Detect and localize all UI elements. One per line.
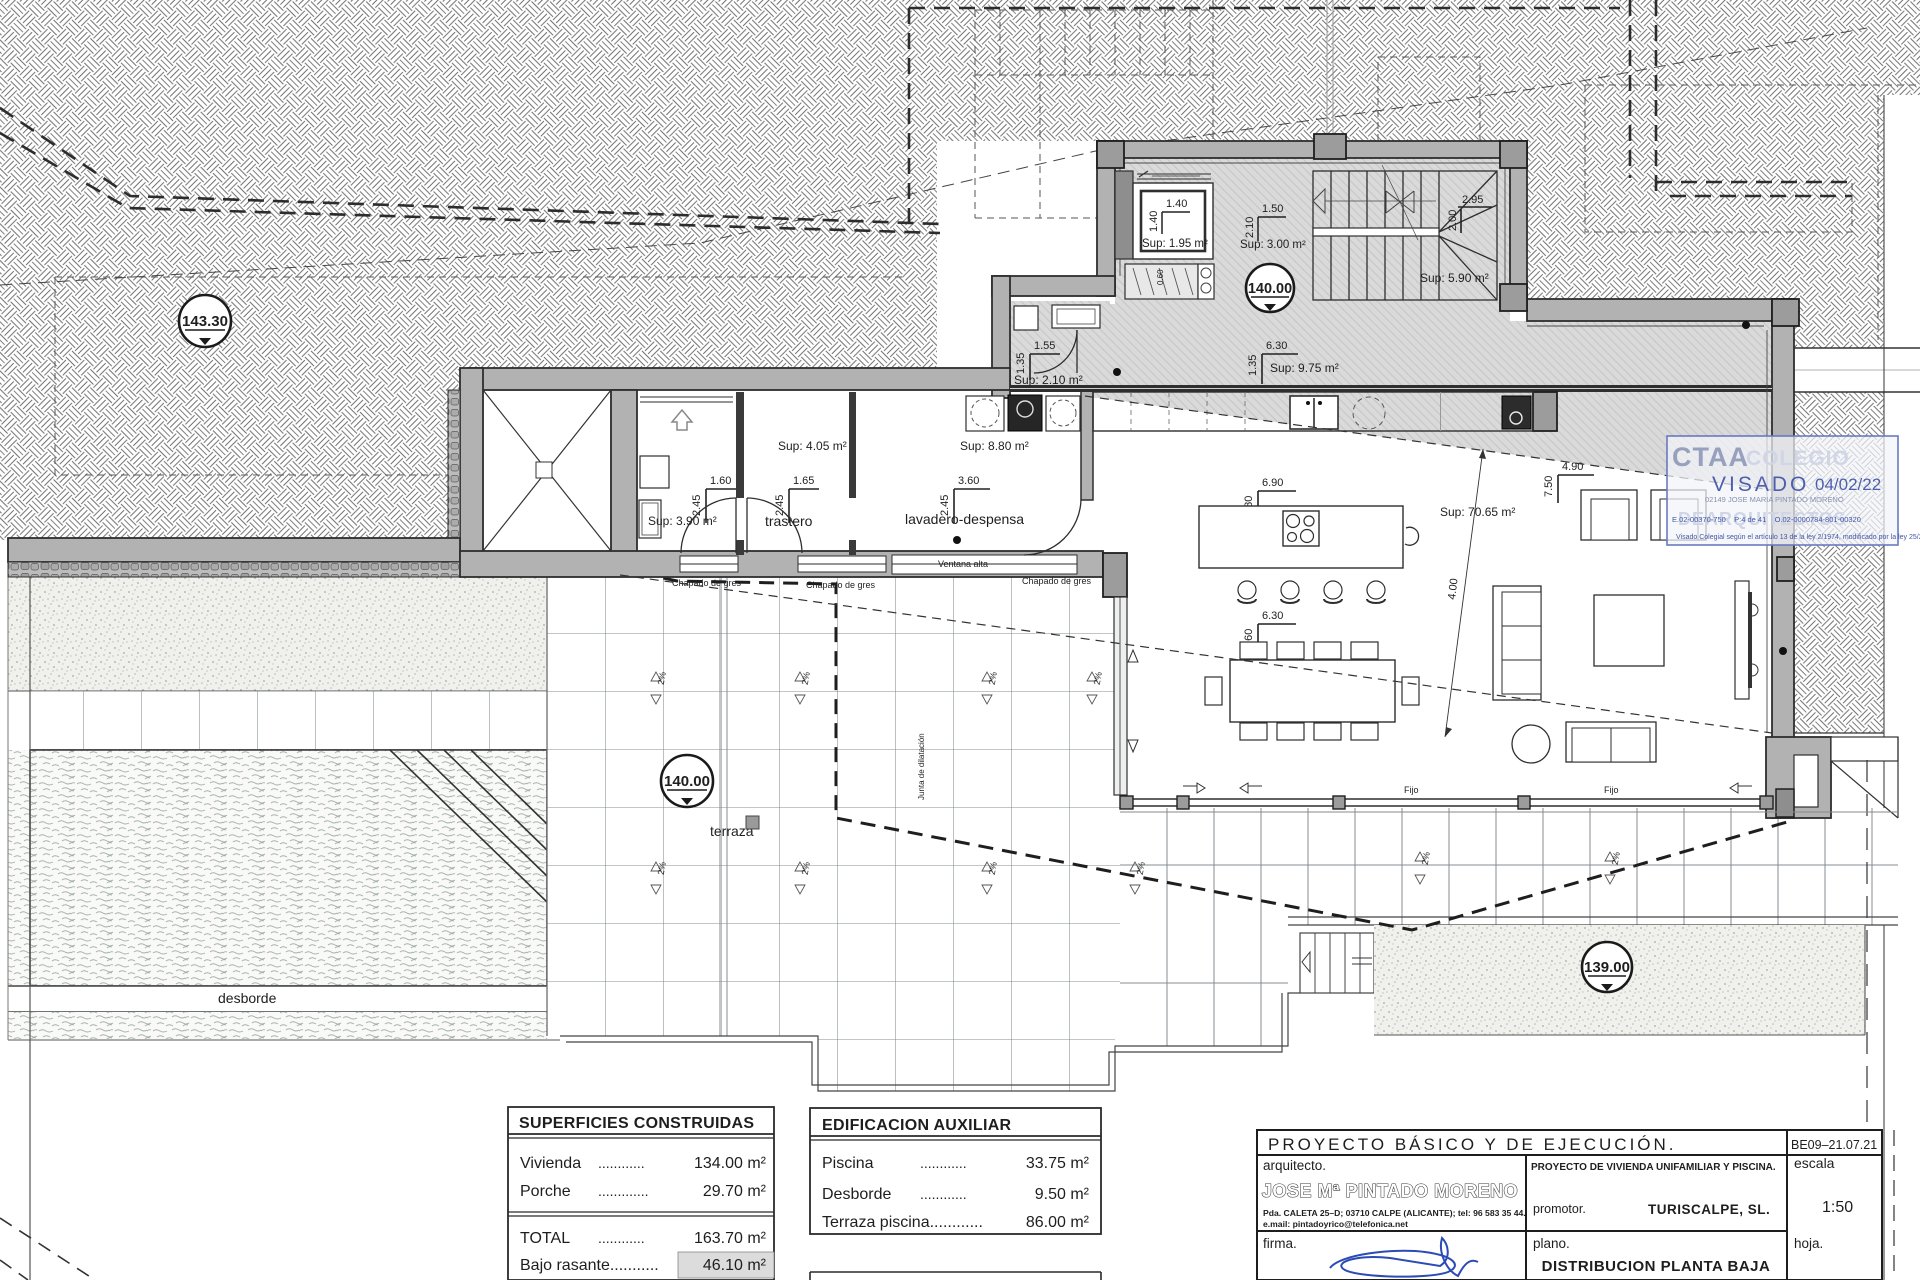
svg-text:Ventana alta: Ventana alta xyxy=(938,559,988,569)
svg-text:Desborde: Desborde xyxy=(822,1186,891,1203)
svg-text:1.35: 1.35 xyxy=(1015,353,1027,374)
svg-text:DISTRIBUCION PLANTA BAJA: DISTRIBUCION PLANTA BAJA xyxy=(1542,1258,1771,1275)
svg-text:Sup: 3.00 m²: Sup: 3.00 m² xyxy=(1240,239,1306,251)
svg-text:Fijo: Fijo xyxy=(1404,785,1419,795)
svg-text:6.30: 6.30 xyxy=(1262,610,1283,622)
svg-text:............: ............ xyxy=(598,1155,645,1171)
svg-text:............: ............ xyxy=(920,1186,967,1202)
svg-text:4.90: 4.90 xyxy=(1562,461,1583,473)
svg-text:1.35: 1.35 xyxy=(1247,355,1259,376)
svg-text:TOTAL: TOTAL xyxy=(520,1230,570,1247)
svg-text:E.02-00370-750 P:4 de 41: E.02-00370-750 P:4 de 41 O.02-0000784-80… xyxy=(1672,515,1861,524)
svg-text:2.45: 2.45 xyxy=(691,495,703,516)
svg-text:Sup: 9.75 m²: Sup: 9.75 m² xyxy=(1270,361,1339,375)
svg-text:Fijo: Fijo xyxy=(1604,785,1619,795)
svg-text:CTAA: CTAA xyxy=(1672,442,1749,472)
svg-text:6.30: 6.30 xyxy=(1266,340,1287,352)
svg-text:2.10: 2.10 xyxy=(1244,217,1256,238)
svg-text:JOSE Mª PINTADO MORENO: JOSE Mª PINTADO MORENO xyxy=(1262,1181,1518,1201)
svg-text:9.50 m²: 9.50 m² xyxy=(1035,1186,1090,1203)
svg-text:04/02/22: 04/02/22 xyxy=(1815,475,1881,494)
svg-text:............: ............ xyxy=(920,1155,967,1171)
svg-text:firma.: firma. xyxy=(1263,1236,1297,1251)
svg-text:lavadero-despensa: lavadero-despensa xyxy=(905,511,1024,527)
svg-text:e.mail: pintadoyrico@telefonic: e.mail: pintadoyrico@telefonica.net xyxy=(1263,1219,1408,1229)
svg-text:Sup: 5.90 m²: Sup: 5.90 m² xyxy=(1420,271,1489,285)
svg-text:1:50: 1:50 xyxy=(1822,1199,1853,1216)
svg-text:2.00: 2.00 xyxy=(1447,210,1459,231)
svg-text:143.30: 143.30 xyxy=(182,313,228,330)
svg-text:Pda. CALETA 25–D; 03710 CALPE: Pda. CALETA 25–D; 03710 CALPE (ALICANTE)… xyxy=(1263,1208,1526,1218)
svg-text:Sup: 3.90 m²: Sup: 3.90 m² xyxy=(648,514,717,528)
svg-text:86.00 m²: 86.00 m² xyxy=(1026,1214,1090,1231)
svg-text:TURISCALPE, SL.: TURISCALPE, SL. xyxy=(1648,1202,1770,1217)
svg-text:134.00 m²: 134.00 m² xyxy=(694,1155,767,1172)
svg-text:arquitecto.: arquitecto. xyxy=(1263,1158,1326,1173)
svg-text:Visado Colegial según el artíc: Visado Colegial según el artículo 13 de … xyxy=(1676,534,1920,541)
svg-text:1.40: 1.40 xyxy=(1166,198,1187,210)
svg-text:Sup: 70.65 m²: Sup: 70.65 m² xyxy=(1440,505,1515,519)
svg-text:PROYECTO BÁSICO Y DE EJECU: PROYECTO BÁSICO Y DE EJECUCIÓN. xyxy=(1268,1135,1677,1154)
svg-text:139.00: 139.00 xyxy=(1584,959,1630,976)
svg-text:Piscina: Piscina xyxy=(822,1155,874,1172)
svg-text:1.50: 1.50 xyxy=(1262,203,1283,215)
svg-text:2.95: 2.95 xyxy=(1462,194,1483,206)
svg-text:Vivienda: Vivienda xyxy=(520,1155,581,1172)
svg-text:Chapado de gres: Chapado de gres xyxy=(806,580,876,590)
svg-text:1.55: 1.55 xyxy=(1034,340,1055,352)
svg-text:Sup: 8.80 m²: Sup: 8.80 m² xyxy=(960,439,1029,453)
svg-text:1.60: 1.60 xyxy=(710,475,731,487)
svg-text:.............: ............. xyxy=(598,1183,649,1199)
svg-text:140.00: 140.00 xyxy=(1248,281,1292,297)
svg-text:140.00: 140.00 xyxy=(664,773,710,790)
svg-text:6.90: 6.90 xyxy=(1262,477,1283,489)
svg-text:02149 JOSE MARIA PINTADO MOREN: 02149 JOSE MARIA PINTADO MORENO xyxy=(1705,495,1844,504)
svg-text:Bajo rasante...........: Bajo rasante........... xyxy=(520,1257,659,1274)
svg-text:............: ............ xyxy=(598,1230,645,1246)
svg-text:1.40: 1.40 xyxy=(1148,211,1160,232)
svg-text:Junta de dilatación: Junta de dilatación xyxy=(917,733,926,800)
svg-text:Porche: Porche xyxy=(520,1183,571,1200)
svg-text:promotor.: promotor. xyxy=(1533,1202,1586,1216)
svg-text:trastero: trastero xyxy=(765,513,813,529)
svg-text:desborde: desborde xyxy=(218,990,277,1006)
svg-text:Terraza piscina............: Terraza piscina............ xyxy=(822,1214,983,1231)
svg-text:0.60: 0.60 xyxy=(1156,269,1165,285)
svg-text:Chapado de gres: Chapado de gres xyxy=(1022,576,1092,586)
svg-text:1.65: 1.65 xyxy=(793,475,814,487)
svg-text:EDIFICACION AUXILIAR: EDIFICACION AUXILIAR xyxy=(822,1117,1012,1134)
svg-text:3.60: 3.60 xyxy=(958,475,979,487)
svg-text:Sup: 2.10 m²: Sup: 2.10 m² xyxy=(1014,373,1083,387)
svg-text:7.50: 7.50 xyxy=(1543,476,1555,497)
svg-text:plano.: plano. xyxy=(1533,1236,1570,1251)
svg-text:29.70 m²: 29.70 m² xyxy=(703,1183,767,1200)
svg-text:PROYECTO DE VIVIENDA UNIFAMILI: PROYECTO DE VIVIENDA UNIFAMILIAR Y PISCI… xyxy=(1531,1162,1776,1173)
svg-text:SUPERFICIES CONSTRUIDAS: SUPERFICIES CONSTRUIDAS xyxy=(519,1115,754,1132)
svg-text:VISADO: VISADO xyxy=(1712,473,1809,496)
svg-text:163.70 m²: 163.70 m² xyxy=(694,1230,767,1247)
svg-text:46.10 m²: 46.10 m² xyxy=(703,1257,767,1274)
svg-text:escala: escala xyxy=(1794,1155,1835,1171)
svg-text:33.75 m²: 33.75 m² xyxy=(1026,1155,1090,1172)
svg-text:hoja.: hoja. xyxy=(1794,1236,1823,1251)
svg-text:BE09–21.07.21: BE09–21.07.21 xyxy=(1791,1138,1877,1152)
svg-text:Sup: 4.05 m²: Sup: 4.05 m² xyxy=(778,439,847,453)
svg-text:COLEGIO: COLEGIO xyxy=(1746,447,1850,470)
svg-text:Sup: 1.95 m²: Sup: 1.95 m² xyxy=(1142,238,1208,250)
